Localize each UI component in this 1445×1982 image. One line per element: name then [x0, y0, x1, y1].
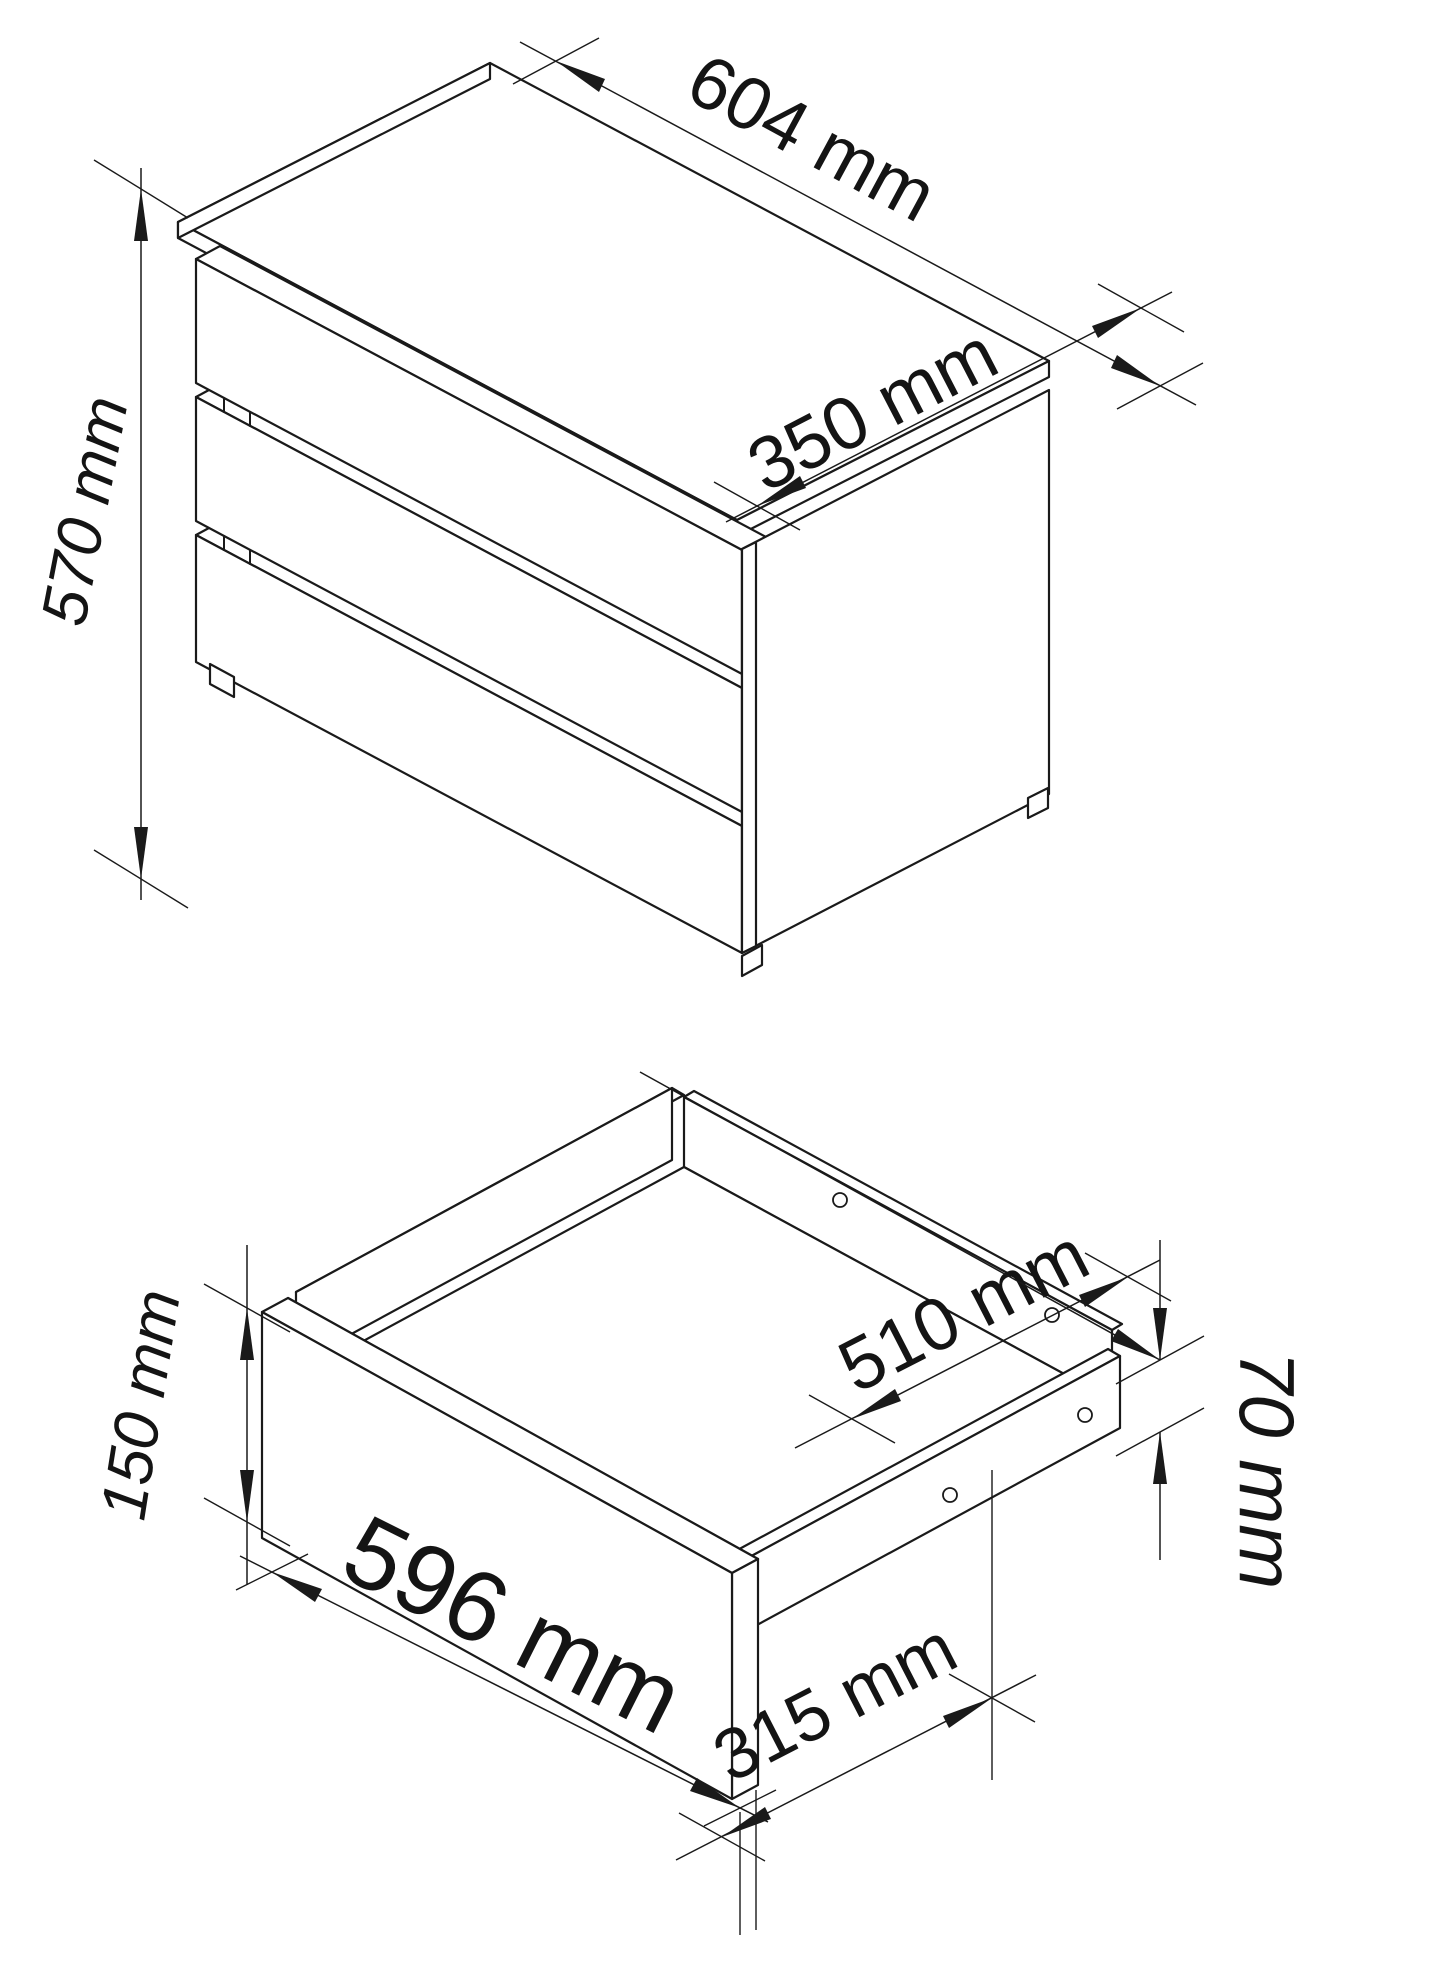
dim-label-side-height: 70 mm	[1223, 1351, 1311, 1589]
arrowhead	[1111, 355, 1160, 386]
arrowhead	[240, 1308, 254, 1360]
dimension-drawing-canvas: 604 mm 350 mm 570 mm	[0, 0, 1445, 1982]
arrowhead	[943, 1698, 992, 1728]
arrowhead	[134, 189, 148, 241]
arrowhead	[1092, 308, 1141, 338]
dim-label-drawer-front-height: 150 mm	[87, 1285, 194, 1525]
arrowhead	[240, 1470, 254, 1522]
arrowhead	[556, 61, 605, 92]
dim-label-chest-height: 570 mm	[27, 390, 142, 631]
arrowhead	[272, 1572, 322, 1602]
chest-side-front-edge	[742, 542, 756, 953]
cam-hole	[943, 1488, 957, 1502]
arrowhead	[134, 827, 148, 879]
cam-hole	[833, 1193, 847, 1207]
arrowhead	[1153, 1432, 1167, 1484]
arrowhead	[1153, 1308, 1167, 1360]
technical-drawing-page: 604 mm 350 mm 570 mm	[0, 0, 1445, 1982]
cam-hole	[1078, 1408, 1092, 1422]
drawer-figure	[262, 1088, 1122, 1799]
